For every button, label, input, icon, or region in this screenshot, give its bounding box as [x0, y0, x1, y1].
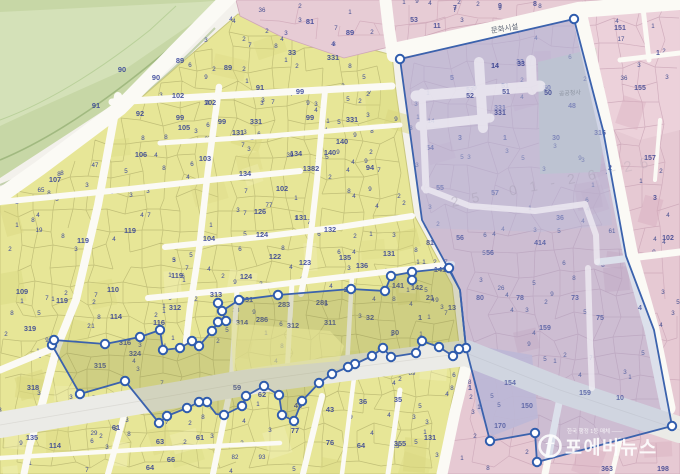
svg-text:1: 1 [402, 0, 406, 6]
svg-text:4: 4 [329, 283, 333, 290]
svg-text:8: 8 [201, 414, 205, 421]
svg-text:7: 7 [334, 25, 338, 32]
svg-text:5: 5 [676, 299, 680, 306]
svg-text:4: 4 [352, 249, 356, 256]
svg-text:9: 9 [233, 279, 237, 286]
svg-text:8: 8 [127, 431, 131, 438]
svg-text:ƒ: ƒ [544, 430, 557, 459]
svg-text:4: 4 [615, 18, 619, 25]
svg-text:140: 140 [324, 148, 336, 157]
svg-text:106: 106 [135, 150, 147, 159]
svg-text:7: 7 [185, 265, 189, 272]
svg-text:77: 77 [266, 202, 273, 209]
svg-text:9: 9 [394, 116, 398, 123]
svg-text:4: 4 [154, 152, 158, 159]
svg-text:6: 6 [188, 62, 192, 69]
svg-text:114: 114 [110, 312, 123, 321]
svg-text:3: 3 [637, 62, 641, 69]
svg-text:89: 89 [176, 56, 184, 65]
svg-text:119: 119 [171, 271, 183, 280]
svg-text:134: 134 [290, 149, 303, 158]
svg-text:2: 2 [4, 331, 8, 338]
svg-text:1: 1 [348, 9, 352, 16]
svg-text:3: 3 [332, 41, 336, 48]
svg-text:119: 119 [77, 236, 89, 245]
svg-text:119: 119 [56, 296, 68, 305]
svg-text:4: 4 [207, 266, 211, 273]
svg-text:2: 2 [183, 439, 187, 446]
svg-text:3: 3 [314, 101, 318, 108]
svg-text:4: 4 [229, 468, 233, 474]
svg-text:6: 6 [452, 372, 456, 379]
svg-text:7: 7 [45, 295, 49, 302]
svg-text:6: 6 [190, 161, 194, 168]
svg-text:5: 5 [414, 439, 418, 446]
svg-text:9: 9 [368, 186, 372, 193]
svg-text:5: 5 [124, 168, 128, 175]
svg-text:51: 51 [502, 89, 510, 96]
svg-text:2: 2 [457, 0, 461, 6]
svg-text:109: 109 [16, 287, 28, 296]
svg-text:2: 2 [212, 66, 216, 73]
svg-text:4: 4 [280, 36, 284, 43]
svg-text:64: 64 [146, 463, 155, 472]
svg-text:134: 134 [239, 169, 252, 178]
svg-text:107: 107 [49, 175, 61, 184]
svg-text:1: 1 [468, 385, 472, 392]
svg-text:2: 2 [87, 323, 91, 330]
svg-text:4: 4 [112, 236, 116, 243]
svg-text:8: 8 [281, 245, 285, 252]
svg-text:126: 126 [254, 207, 266, 216]
svg-text:90: 90 [118, 65, 126, 74]
svg-text:7: 7 [244, 188, 248, 195]
svg-text:1: 1 [91, 323, 95, 330]
svg-text:6: 6 [238, 246, 242, 253]
svg-text:2: 2 [525, 449, 529, 456]
svg-text:122: 122 [269, 252, 281, 261]
svg-text:4: 4 [346, 167, 350, 174]
svg-text:3: 3 [661, 289, 665, 296]
svg-text:102: 102 [204, 98, 216, 107]
svg-text:3: 3 [412, 414, 416, 421]
svg-text:8: 8 [347, 188, 351, 195]
svg-text:4: 4 [352, 193, 356, 200]
svg-text:8: 8 [164, 134, 168, 141]
svg-text:4: 4 [140, 212, 144, 219]
svg-text:110: 110 [107, 285, 119, 294]
svg-text:6: 6 [206, 122, 210, 129]
svg-text:2: 2 [188, 420, 192, 427]
svg-text:135: 135 [26, 433, 38, 442]
svg-text:2: 2 [328, 174, 332, 181]
svg-text:3: 3 [172, 257, 176, 264]
svg-text:2: 2 [8, 246, 12, 253]
svg-text:2: 2 [242, 36, 246, 43]
svg-text:6: 6 [90, 438, 94, 445]
svg-text:1: 1 [171, 335, 175, 342]
svg-text:132: 132 [324, 225, 336, 234]
svg-text:124: 124 [240, 272, 253, 281]
svg-text:8: 8 [141, 135, 145, 142]
svg-text:2: 2 [659, 168, 663, 175]
svg-text:7: 7 [271, 99, 275, 106]
svg-text:99: 99 [296, 87, 304, 96]
svg-text:1: 1 [639, 178, 643, 185]
svg-text:3: 3 [129, 192, 133, 199]
svg-text:5: 5 [346, 96, 350, 103]
svg-text:8: 8 [61, 233, 65, 240]
svg-text:155: 155 [634, 85, 646, 92]
svg-text:2: 2 [473, 433, 477, 440]
svg-text:7: 7 [147, 212, 151, 219]
svg-text:8: 8 [97, 314, 101, 321]
svg-text:3: 3 [236, 207, 240, 214]
svg-text:3: 3 [210, 433, 214, 440]
svg-text:131: 131 [232, 128, 244, 137]
svg-text:8: 8 [348, 63, 352, 70]
svg-text:124: 124 [256, 230, 269, 239]
svg-text:2: 2 [265, 28, 269, 35]
svg-text:102: 102 [172, 91, 184, 100]
svg-text:1: 1 [284, 57, 288, 64]
svg-text:8: 8 [274, 43, 278, 50]
svg-text:52: 52 [466, 93, 474, 100]
svg-text:114: 114 [49, 441, 62, 450]
svg-text:5: 5 [418, 403, 422, 410]
svg-text:3: 3 [247, 146, 251, 153]
svg-text:9: 9 [336, 149, 340, 156]
svg-text:313: 313 [210, 290, 222, 299]
svg-text:81: 81 [306, 17, 314, 26]
svg-text:8: 8 [486, 465, 490, 472]
svg-text:119: 119 [124, 226, 136, 235]
svg-text:91: 91 [92, 101, 100, 110]
svg-text:3: 3 [284, 30, 288, 37]
svg-text:7: 7 [94, 292, 98, 299]
svg-text:4: 4 [653, 236, 657, 243]
svg-text:1: 1 [162, 303, 166, 310]
svg-text:1: 1 [460, 455, 464, 462]
svg-text:151: 151 [614, 25, 626, 32]
svg-text:4: 4 [428, 0, 432, 7]
svg-text:3: 3 [298, 17, 302, 24]
svg-text:123: 123 [299, 258, 311, 267]
svg-text:93: 93 [259, 454, 266, 461]
svg-text:5: 5 [337, 119, 341, 126]
svg-text:2: 2 [397, 193, 401, 200]
svg-text:8: 8 [450, 385, 454, 392]
svg-text:9: 9 [306, 100, 310, 107]
svg-text:7: 7 [243, 210, 247, 217]
svg-text:53: 53 [410, 17, 418, 24]
svg-text:1: 1 [209, 222, 213, 229]
svg-text:2: 2 [358, 98, 362, 105]
svg-text:7: 7 [377, 167, 381, 174]
svg-text:103: 103 [199, 154, 211, 163]
svg-text:89: 89 [346, 28, 354, 37]
svg-text:19: 19 [36, 227, 43, 234]
svg-text:9: 9 [415, 0, 419, 5]
svg-text:90: 90 [152, 73, 160, 82]
svg-text:43: 43 [326, 405, 334, 414]
svg-text:5: 5 [362, 74, 366, 81]
svg-text:5: 5 [37, 310, 41, 317]
svg-text:2: 2 [476, 1, 480, 8]
svg-text:1: 1 [256, 401, 260, 408]
svg-text:77: 77 [291, 426, 299, 435]
svg-text:3: 3 [671, 310, 675, 317]
svg-text:36: 36 [359, 397, 367, 406]
svg-text:2: 2 [99, 433, 103, 440]
svg-text:3: 3 [471, 409, 475, 416]
svg-text:5: 5 [189, 252, 193, 259]
svg-text:319: 319 [24, 324, 36, 333]
svg-text:2: 2 [370, 29, 374, 36]
svg-text:331: 331 [327, 53, 339, 62]
svg-text:104: 104 [203, 234, 216, 243]
svg-text:1: 1 [326, 118, 330, 125]
svg-text:89: 89 [224, 63, 232, 72]
svg-text:8: 8 [10, 310, 14, 317]
svg-text:61: 61 [112, 423, 120, 432]
svg-text:91: 91 [256, 83, 264, 92]
svg-text:92: 92 [136, 109, 144, 118]
svg-text:131: 131 [424, 433, 436, 442]
svg-text:29: 29 [91, 430, 98, 437]
svg-text:82: 82 [232, 454, 239, 461]
svg-text:2: 2 [402, 200, 406, 207]
svg-text:198: 198 [657, 466, 669, 473]
svg-text:331: 331 [346, 115, 358, 124]
svg-text:한국 행정 1등 매체 ——: 한국 행정 1등 매체 —— [567, 427, 623, 435]
svg-text:8: 8 [31, 217, 35, 224]
svg-text:355: 355 [394, 439, 406, 448]
svg-text:2: 2 [369, 149, 373, 156]
svg-text:8: 8 [538, 3, 542, 10]
svg-text:8: 8 [162, 165, 166, 172]
svg-text:3: 3 [85, 182, 89, 189]
svg-text:4: 4 [387, 412, 391, 419]
svg-text:64: 64 [357, 441, 366, 450]
svg-text:4: 4 [666, 212, 670, 219]
svg-text:1: 1 [15, 222, 19, 229]
svg-text:4: 4 [289, 264, 293, 271]
svg-text:8: 8 [414, 247, 418, 254]
svg-text:4: 4 [370, 430, 374, 437]
svg-text:3: 3 [653, 195, 657, 202]
svg-text:3: 3 [194, 128, 198, 135]
svg-text:331: 331 [494, 110, 506, 117]
svg-text:105: 105 [178, 123, 190, 132]
svg-text:63: 63 [156, 437, 164, 446]
svg-text:2: 2 [298, 3, 302, 10]
svg-text:1: 1 [245, 78, 249, 85]
svg-text:4: 4 [351, 159, 355, 166]
svg-text:2: 2 [469, 394, 473, 401]
svg-text:318: 318 [27, 383, 39, 392]
svg-text:3: 3 [261, 97, 265, 104]
svg-text:131: 131 [383, 249, 395, 258]
svg-text:5: 5 [292, 466, 296, 473]
svg-text:1: 1 [651, 23, 655, 30]
svg-text:3: 3 [435, 452, 439, 459]
svg-text:3: 3 [366, 112, 370, 119]
svg-text:140: 140 [336, 137, 348, 146]
svg-text:102: 102 [662, 235, 674, 242]
svg-text:61: 61 [196, 433, 204, 442]
svg-text:102: 102 [276, 184, 288, 193]
svg-text:3: 3 [268, 427, 272, 434]
svg-text:4: 4 [242, 418, 246, 425]
svg-text:99: 99 [306, 113, 314, 122]
svg-text:65: 65 [38, 187, 45, 194]
svg-text:2: 2 [221, 273, 225, 280]
svg-text:3: 3 [204, 37, 208, 44]
svg-text:363: 363 [601, 466, 613, 473]
svg-text:4: 4 [445, 391, 449, 398]
svg-text:14: 14 [491, 63, 499, 70]
svg-text:136: 136 [356, 261, 368, 270]
svg-text:3: 3 [392, 232, 396, 239]
svg-text:99: 99 [218, 117, 226, 126]
svg-text:9: 9 [19, 440, 23, 447]
svg-text:35: 35 [394, 395, 402, 404]
svg-text:7: 7 [241, 142, 245, 149]
svg-text:포에버뉴스: 포에버뉴스 [565, 437, 658, 458]
svg-text:99: 99 [176, 113, 184, 122]
svg-text:4: 4 [392, 380, 396, 387]
svg-text:4: 4 [314, 107, 318, 114]
svg-text:17: 17 [618, 36, 625, 43]
svg-text:1: 1 [51, 296, 55, 303]
svg-text:8: 8 [533, 1, 537, 8]
svg-text:1: 1 [294, 195, 298, 202]
svg-text:9: 9 [204, 74, 208, 81]
svg-text:3: 3 [74, 246, 78, 253]
svg-text:3: 3 [425, 419, 429, 426]
svg-text:33: 33 [517, 61, 525, 68]
svg-text:4: 4 [232, 18, 236, 25]
svg-text:2: 2 [242, 66, 246, 73]
svg-text:2: 2 [398, 376, 402, 383]
svg-text:131: 131 [295, 213, 307, 222]
svg-text:3: 3 [665, 74, 669, 81]
svg-text:9: 9 [498, 5, 502, 12]
svg-text:7: 7 [85, 467, 89, 474]
svg-text:1: 1 [369, 231, 373, 238]
svg-text:135: 135 [339, 253, 351, 262]
svg-text:7: 7 [453, 7, 457, 14]
svg-text:2: 2 [353, 233, 357, 240]
svg-text:66: 66 [167, 455, 175, 464]
svg-text:4: 4 [659, 322, 663, 329]
svg-text:47: 47 [92, 162, 99, 169]
svg-text:3: 3 [347, 265, 351, 272]
svg-text:312: 312 [169, 303, 181, 312]
svg-text:50: 50 [544, 90, 552, 97]
svg-text:7: 7 [248, 42, 252, 49]
svg-text:2: 2 [295, 63, 299, 70]
svg-text:11: 11 [433, 23, 441, 30]
svg-text:62: 62 [258, 390, 266, 399]
svg-text:4: 4 [375, 203, 379, 210]
svg-text:1382: 1382 [303, 164, 319, 173]
svg-text:1: 1 [20, 298, 24, 305]
svg-text:33: 33 [288, 48, 296, 57]
svg-text:9: 9 [353, 132, 357, 139]
svg-text:4: 4 [36, 212, 40, 219]
svg-text:76: 76 [326, 438, 334, 447]
svg-text:1: 1 [656, 50, 660, 57]
svg-text:2: 2 [92, 299, 96, 306]
svg-text:36: 36 [621, 75, 628, 82]
svg-text:331: 331 [250, 117, 262, 126]
svg-text:3: 3 [460, 17, 464, 24]
svg-text:94: 94 [366, 163, 375, 172]
svg-text:36: 36 [259, 7, 266, 14]
